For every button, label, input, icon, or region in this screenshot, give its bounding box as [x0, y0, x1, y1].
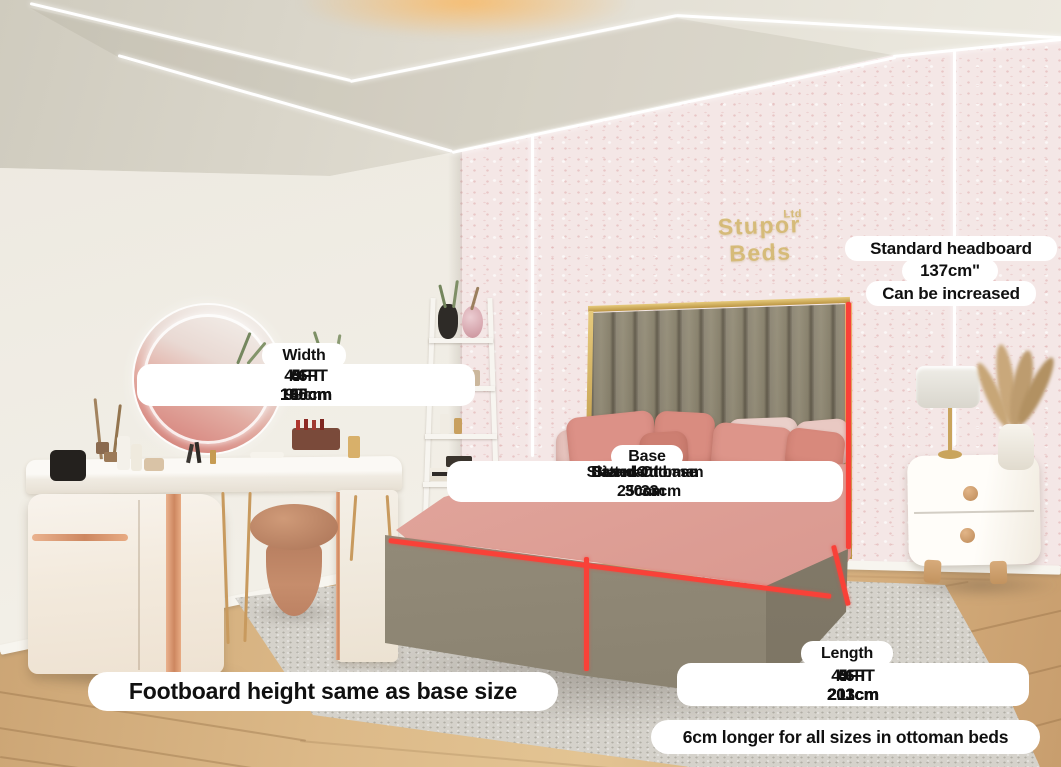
width-table: 3FT99cm 4FT130cm 4.6FT145cm 5FT160cm 6FT…	[137, 364, 475, 406]
nightstand-leg	[923, 560, 941, 584]
ladder-shelf-board	[429, 338, 493, 343]
value-label: 33cm	[607, 482, 715, 501]
cosmetics-jar	[104, 452, 118, 462]
width-title: Width	[282, 347, 325, 365]
pink-globe-vase	[462, 306, 483, 338]
ottoman-note-text: 6cm longer for all sizes in ottoman beds	[683, 727, 1009, 748]
value-label: 211cm	[828, 685, 879, 704]
measure-line-headboard-height	[846, 302, 851, 549]
headboard-note-line2: 137cm"	[902, 259, 998, 283]
headboard-note-line1: Standard headboard	[845, 236, 1057, 261]
length-column: 6FT211cm	[828, 666, 879, 704]
nightstand-leg	[990, 561, 1008, 585]
length-title: Length	[821, 645, 873, 663]
headboard-note-line3: Can be increased	[866, 281, 1036, 306]
cosmetics-bottle	[131, 444, 142, 471]
nightstand	[907, 454, 1041, 566]
measure-line-base-height	[584, 557, 589, 671]
drawer-seam	[914, 510, 1034, 514]
base-type-label: Divan Ottoman	[591, 463, 699, 482]
lipstick-organizer	[292, 428, 340, 450]
vanity-tray	[250, 452, 284, 458]
cosmetics-gold-tube	[210, 450, 216, 464]
lipstick	[312, 420, 316, 430]
size-label: 6FT	[280, 366, 332, 385]
brand-logo-suffix: Ltd	[783, 208, 802, 221]
headboard-note-text: 137cm"	[920, 261, 980, 281]
shelf-decor-bottle	[440, 414, 449, 434]
headboard-note-text: Standard headboard	[870, 239, 1032, 259]
vanity-door-seam	[138, 500, 140, 670]
shelf-decor-bottle	[454, 418, 462, 434]
width-column: 6FT190cm	[280, 366, 332, 404]
vanity-copper-strip	[166, 494, 181, 674]
lamp-shade	[916, 366, 980, 408]
vanity-stool-seat	[250, 504, 338, 550]
perfume-bottle	[348, 436, 360, 458]
pampas-vase	[998, 424, 1034, 470]
lamp-stem	[948, 406, 952, 456]
size-label: 6FT	[828, 666, 879, 685]
length-table: 3FT203cm 4FT203cm 4.6FT203cm 5FT211cm 6F…	[677, 663, 1029, 706]
ottoman-note: 6cm longer for all sizes in ottoman beds	[651, 720, 1040, 754]
vanity-cabinet	[28, 494, 224, 674]
cosmetics-black-box	[50, 450, 86, 481]
headboard-note-text: Can be increased	[882, 284, 1020, 304]
base-table: Standard base25cm Slatted Ottoman30cm Di…	[447, 461, 843, 502]
lamp-base	[938, 450, 962, 459]
drawer-knob	[963, 486, 978, 501]
lipstick	[320, 419, 324, 430]
footboard-note: Footboard height same as base size	[88, 672, 558, 711]
vanity-copper-band	[32, 534, 128, 541]
drawer-knob	[960, 528, 975, 543]
ladder-shelf-board	[425, 434, 497, 439]
value-label: 190cm	[280, 385, 332, 404]
lipstick	[304, 419, 308, 430]
lipstick	[296, 420, 300, 430]
vanity-copper-strip	[336, 492, 340, 660]
bedroom-product-scene: Stupor Beds Ltd	[0, 0, 1061, 767]
footboard-note-text: Footboard height same as base size	[129, 678, 517, 705]
black-vase	[438, 304, 458, 339]
cosmetics-bottle	[117, 436, 130, 470]
cosmetics-cream-jar	[144, 458, 164, 471]
base-column: Divan Ottoman33cm	[591, 463, 699, 501]
wall-led-line	[531, 135, 534, 457]
